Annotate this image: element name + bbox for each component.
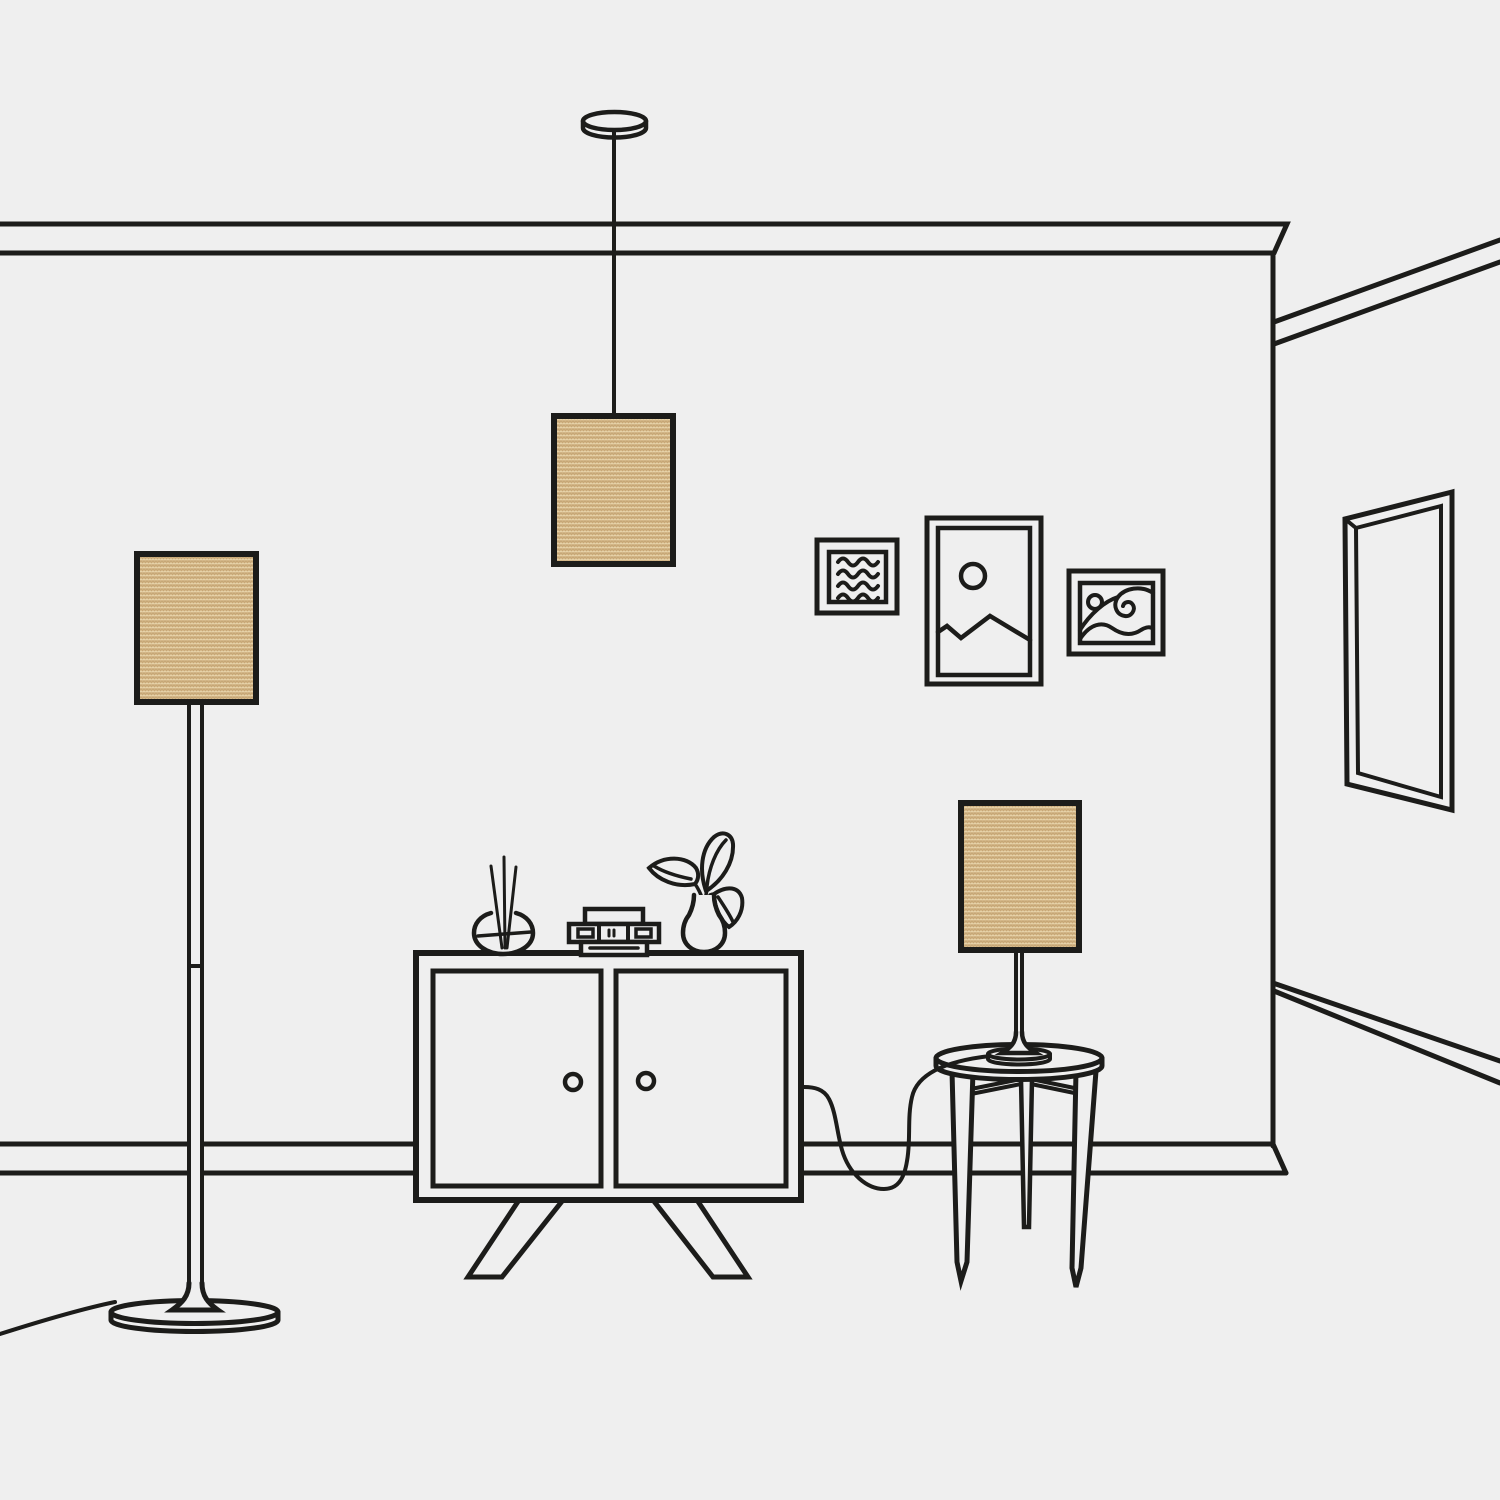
diffuser-reed-2 bbox=[504, 857, 505, 948]
frame-wavy-lines bbox=[817, 540, 897, 613]
frame-landscape bbox=[927, 518, 1041, 684]
frame-ocean-wave bbox=[1069, 571, 1163, 654]
floor-lamp-pole bbox=[189, 702, 202, 1285]
frame-landscape-outer bbox=[927, 518, 1041, 684]
cabinet-body bbox=[416, 953, 801, 1200]
floor-lampshade-weave bbox=[137, 554, 256, 702]
room-illustration bbox=[0, 0, 1500, 1500]
pendant-lampshade bbox=[554, 416, 673, 564]
floor-lampshade bbox=[137, 554, 256, 702]
wall-mirror bbox=[1345, 492, 1452, 810]
pendant-lampshade-weave bbox=[554, 416, 673, 564]
mirror-outer-frame bbox=[1345, 492, 1452, 810]
table-lampshade-weave bbox=[961, 803, 1079, 950]
pendant-canopy bbox=[583, 112, 646, 130]
table-lampshade bbox=[961, 803, 1079, 950]
table-left-leg bbox=[952, 1071, 973, 1281]
table-center-leg bbox=[1021, 1079, 1032, 1227]
